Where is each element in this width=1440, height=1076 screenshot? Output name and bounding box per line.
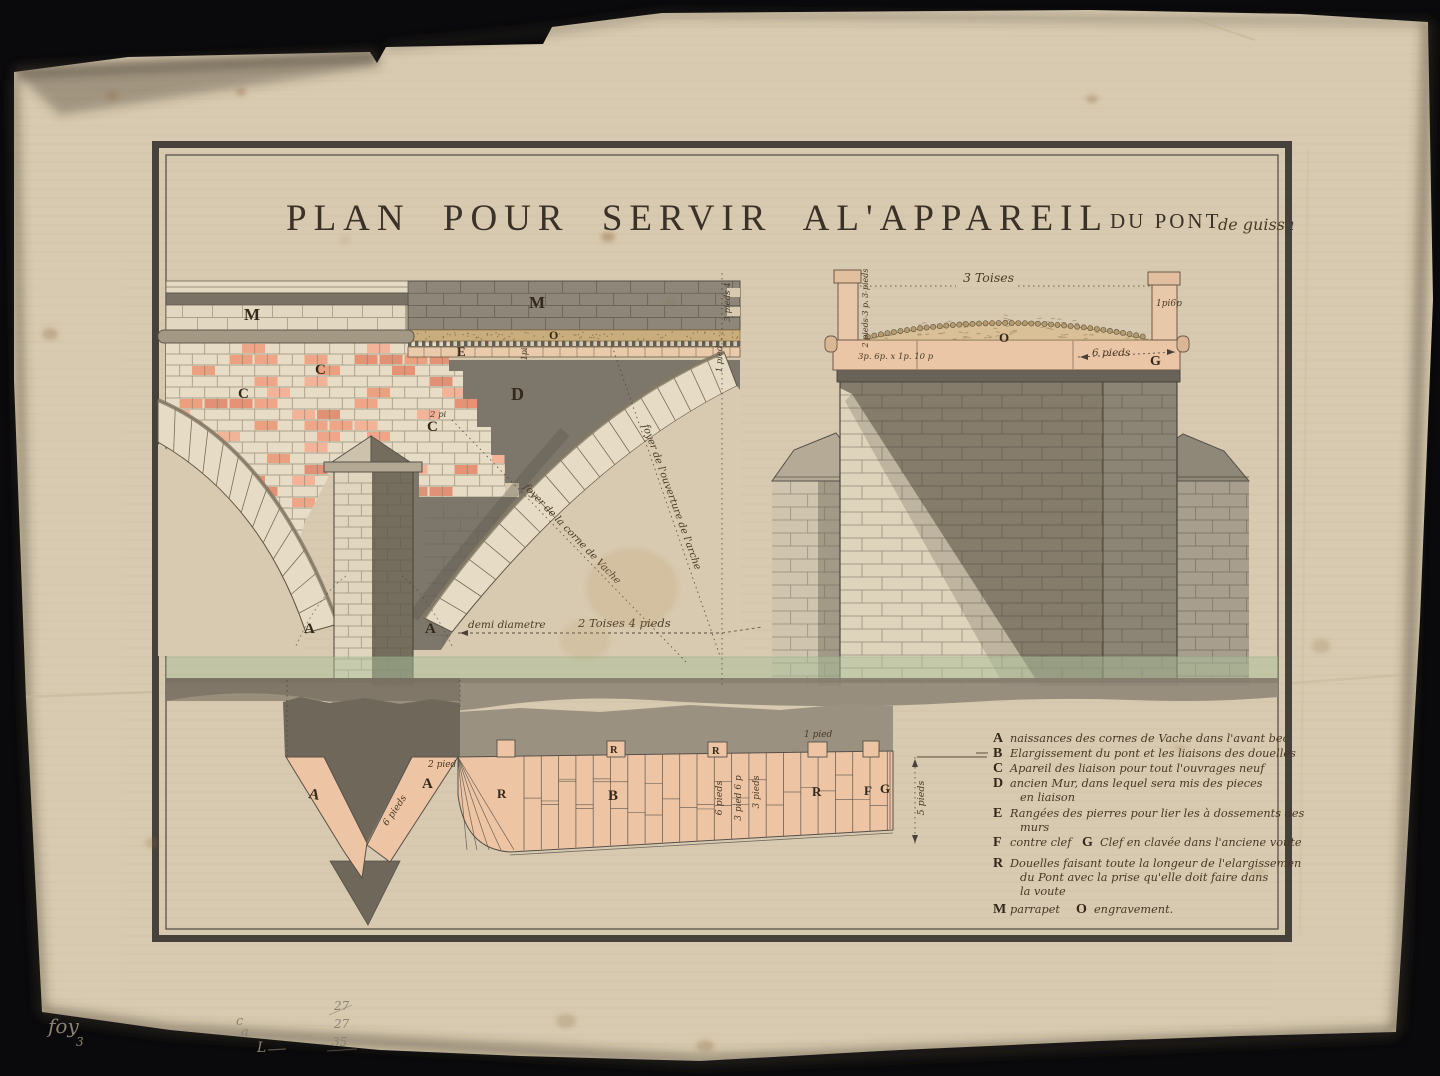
central-pier [324, 436, 422, 686]
label-six_pieds: 6 pieds [1092, 347, 1131, 359]
page-title-script: de guissa [1218, 215, 1294, 234]
legend-letter: D [993, 776, 1003, 791]
legend-letter: B [993, 746, 1002, 761]
label-post_right: 1pi6p [1156, 299, 1182, 309]
label-foy: foy [46, 1014, 79, 1038]
right-buttress [1177, 434, 1249, 686]
douelle-tab [863, 741, 879, 757]
label-f: F [864, 783, 872, 798]
label-o: O [999, 330, 1009, 345]
legend-text: Rangées des pierres pour lier les à doss… [1009, 807, 1305, 820]
label-r1: R [497, 786, 507, 801]
label-two_pi: 2 pi [429, 410, 447, 420]
label-a2: A [425, 621, 436, 637]
legend-text: contre clef [1010, 836, 1073, 849]
plan-dark-mass [283, 697, 460, 757]
label-deck: 3p. 6p. x 1p. 10 p [858, 352, 934, 362]
label-two_pied: 2 pied [427, 760, 457, 770]
label-e: E [457, 344, 466, 359]
page-title-sub: DU PONT [1110, 209, 1221, 233]
label-c1: C [315, 362, 326, 378]
label-r2: R [812, 784, 822, 799]
label-o: O [549, 328, 558, 342]
legend-text: en liaison [1020, 791, 1075, 804]
legend-text: du Pont avec la prise qu'elle doit faire… [1020, 871, 1268, 884]
douelle-tab [497, 740, 515, 757]
label-three_pieds: 3 pieds [752, 775, 762, 808]
label-c2: C [238, 386, 249, 402]
label-n1: 27 [333, 999, 350, 1013]
label-m2: M [529, 293, 545, 312]
label-edge_top: 3 pieds 4 [723, 282, 733, 321]
legend-text: la voute [1020, 885, 1066, 898]
legend-letter: A [993, 731, 1004, 746]
label-six_pieds_band: 6 pieds [714, 780, 725, 815]
legend-text: Elargissement du pont et les liaisons de… [1009, 747, 1296, 760]
legend-letter: R [993, 856, 1004, 871]
legend-letter: C [993, 761, 1003, 776]
scanned-drawing-page: PLAN POUR SERVIR AL'APPAREIL DU PONT de … [0, 0, 1440, 1076]
legend-text: Apareil des liaison pour tout l'ouvrages… [1009, 762, 1266, 775]
label-g: G [1150, 354, 1161, 369]
label-post_left: 2 pieds 3 p. 3 pieds [861, 269, 870, 349]
label-one_pi: 1pi [520, 347, 529, 360]
label-three_p_six: 3 pied 6 p [734, 775, 744, 821]
label-l: L [256, 1040, 266, 1056]
label-five_pieds: 5 pieds [916, 780, 927, 815]
label-g: G [880, 781, 890, 796]
page-title: PLAN POUR SERVIR AL'APPAREIL [286, 198, 1109, 239]
label-c3: C [427, 419, 438, 435]
legend-letter: M [993, 902, 1006, 917]
right-elevation [772, 270, 1249, 686]
legend-letter: F [993, 835, 1002, 850]
label-a2: A [422, 776, 433, 792]
legend-letter: E [993, 806, 1002, 821]
water-band [166, 657, 1278, 678]
legend-letter: O [1076, 902, 1087, 917]
legend-text: engravement. [1094, 903, 1173, 916]
left-buttress [772, 433, 840, 686]
legend-text: parrapet [1010, 903, 1060, 916]
label-toises: 3 Toises [963, 270, 1014, 285]
bridge-plan-drawing: PLAN POUR SERVIR AL'APPAREIL DU PONT de … [0, 0, 1440, 1076]
label-three: 3 [76, 1035, 84, 1049]
douelle-tab [808, 742, 827, 757]
parapet-face-bands [158, 281, 414, 343]
legend-text: Clef en clavée dans l'anciene voute [1100, 836, 1302, 849]
label-r_tab1: R [610, 745, 618, 756]
legend-letter: G [1082, 835, 1093, 850]
label-demi: demi diametre [468, 619, 546, 631]
label-m1: M [244, 305, 260, 324]
label-edge_bot: 1 pied [715, 345, 725, 372]
label-d: D [511, 384, 524, 404]
label-r_tab2: R [712, 746, 720, 757]
label-one_pied: 1 pied [804, 730, 833, 740]
label-b: B [608, 788, 618, 804]
main-pier [840, 382, 1177, 686]
legend-text: ancien Mur, dans lequel sera mis des pie… [1010, 777, 1263, 790]
label-a: a [241, 1025, 249, 1040]
legend-text: murs [1020, 821, 1049, 834]
label-n3: 35 [332, 1035, 347, 1049]
label-a1: A [304, 621, 315, 637]
label-n2: 27 [333, 1017, 350, 1031]
legend-text: naissances des cornes de Vache dans l'av… [1010, 732, 1290, 745]
